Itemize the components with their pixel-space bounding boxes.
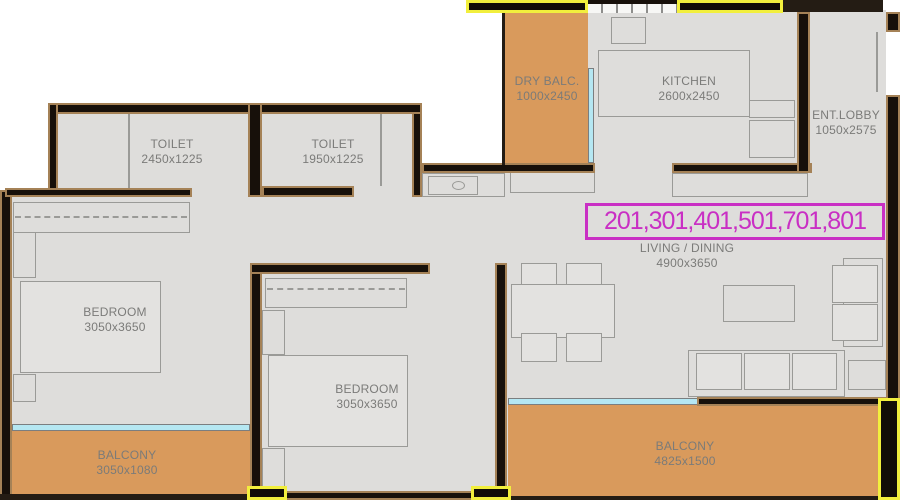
window-living [508, 398, 698, 405]
room-name: TOILET [141, 137, 202, 152]
wall-kitchen-lobby [797, 12, 810, 173]
wardrobe-dashed-line [267, 288, 405, 290]
counter [510, 172, 595, 193]
room-label-toilet-2: TOILET 1950x1225 [302, 137, 363, 167]
room-name: TOILET [302, 137, 363, 152]
shear-wall-marker-top-1 [466, 0, 588, 13]
side-table [13, 232, 36, 278]
wall-exterior-right-top [886, 12, 900, 32]
room-label-dry-balcony: DRY BALC. 1000x2450 [515, 74, 580, 104]
wall-toilet2-south [262, 186, 354, 197]
room-dims: 1050x2575 [812, 123, 880, 138]
room-name: BEDROOM [335, 382, 398, 397]
toilet-partition [380, 114, 382, 186]
wall-toilet1-south [5, 188, 192, 197]
room-label-bedroom-middle: BEDROOM 3050x3650 [335, 382, 398, 412]
entrance-door-leaf [876, 32, 878, 92]
room-name: BEDROOM [83, 305, 146, 320]
wall-kitchen-south [672, 163, 812, 173]
shear-wall-marker-bottom-1 [247, 486, 287, 500]
room-dims: 3050x3650 [335, 397, 398, 412]
wall-bedroom-middle-right [495, 263, 507, 490]
loveseat-seat [832, 304, 878, 341]
room-dims: 4825x1500 [654, 454, 715, 469]
dining-chair [566, 333, 602, 362]
wall-living-south [697, 397, 886, 406]
vent-grille [588, 0, 677, 13]
floor-toilet-block [48, 103, 422, 197]
sofa-seat [696, 353, 742, 390]
room-label-balcony-left: BALCONY 3050x1080 [96, 448, 157, 478]
wall-passage-north [422, 163, 595, 173]
toilet-partition [128, 114, 130, 188]
shear-wall-marker-top-2 [677, 0, 783, 13]
refrigerator [749, 100, 795, 118]
wardrobe-dashed-line [15, 216, 187, 218]
shear-wall-marker-bottom-2 [471, 486, 511, 500]
floor-window-gap [588, 12, 594, 70]
wall-toilet-right [412, 112, 422, 197]
sofa-seat [744, 353, 790, 390]
room-dims: 2600x2450 [658, 89, 719, 104]
room-label-living-dining: LIVING / DINING 4900x3650 [640, 241, 734, 271]
wall-toilet-top [48, 103, 422, 114]
room-name: BALCONY [654, 439, 715, 454]
wall-dry-balcony-left [502, 12, 505, 165]
refrigerator [749, 120, 795, 158]
room-dims: 3050x1080 [96, 463, 157, 478]
room-dims: 1000x2450 [515, 89, 580, 104]
room-name: LIVING / DINING [640, 241, 734, 256]
shear-wall-marker-right [878, 398, 900, 500]
room-label-entrance-lobby: ENT.LOBBY 1050x2575 [812, 108, 880, 138]
side-table [262, 310, 285, 355]
kitchen-sink [611, 17, 646, 44]
wall-exterior-left [0, 190, 12, 500]
wall-exterior-right [886, 95, 900, 400]
wall-bottom-right [508, 496, 886, 500]
room-name: KITCHEN [658, 74, 719, 89]
wall-bedroom-middle-top [250, 263, 430, 274]
room-dims: 2450x1225 [141, 152, 202, 167]
room-label-bedroom-left: BEDROOM 3050x3650 [83, 305, 146, 335]
window-bedroom-left [12, 424, 250, 431]
unit-numbers-banner: 201,301,401,501,701,801 [585, 203, 885, 240]
room-name: DRY BALC. [515, 74, 580, 89]
counter [672, 173, 808, 197]
wall-top-right [783, 0, 883, 12]
window-dry-balcony [588, 68, 594, 163]
side-table [13, 374, 36, 402]
room-label-kitchen: KITCHEN 2600x2450 [658, 74, 719, 104]
wall-bedroom-middle-left [250, 263, 262, 497]
side-table [262, 448, 285, 490]
wall-toilet-left [48, 103, 58, 197]
wash-basin-bowl [452, 181, 465, 190]
floor-plan: TOILET 2450x1225 TOILET 1950x1225 DRY BA… [0, 0, 900, 500]
dining-table [511, 284, 615, 338]
room-label-toilet-1: TOILET 2450x1225 [141, 137, 202, 167]
side-table [848, 360, 886, 390]
wardrobe-bedroom-middle [265, 278, 407, 308]
wall-bottom-middle [250, 491, 508, 500]
wall-toilet-mid [248, 103, 262, 197]
coffee-table [723, 285, 795, 322]
dining-chair [521, 333, 557, 362]
wall-bottom-left [0, 494, 250, 500]
room-dims: 1950x1225 [302, 152, 363, 167]
sofa-seat [792, 353, 837, 390]
room-name: BALCONY [96, 448, 157, 463]
loveseat-seat [832, 265, 878, 303]
room-dims: 3050x3650 [83, 320, 146, 335]
room-dims: 4900x3650 [640, 256, 734, 271]
room-label-balcony-right: BALCONY 4825x1500 [654, 439, 715, 469]
room-name: ENT.LOBBY [812, 108, 880, 123]
